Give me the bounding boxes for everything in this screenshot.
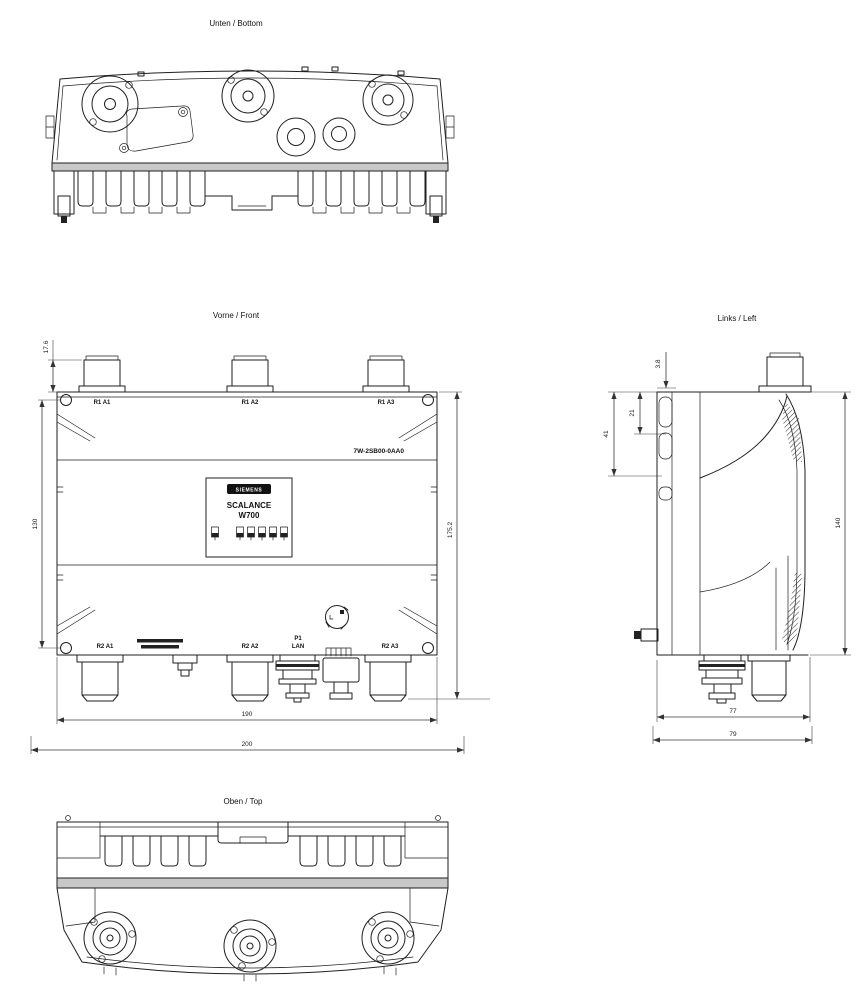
bottom-fin-comb [54, 171, 446, 214]
left-lan-m12-connector [699, 655, 745, 703]
front-lan-m12-connector [276, 655, 319, 702]
port-label-r2a3: R2 A3 [382, 644, 399, 650]
port-label-lan: LAN [292, 644, 304, 650]
dim-bracket-depth: 41 [603, 430, 610, 438]
port-label-r1a2: R1 A2 [242, 400, 259, 406]
view-left-title: Links / Left [718, 314, 757, 323]
nameplate-family: SCALANCE [227, 501, 272, 510]
bottom-housing-band [52, 163, 448, 171]
view-bottom-title: Unten / Bottom [209, 19, 263, 28]
led-group [237, 527, 288, 540]
dim-rail-lip: 3.8 [655, 359, 662, 368]
part-number: 7W-2SB00-0AA0 [354, 448, 405, 455]
front-body [57, 392, 437, 655]
left-body [657, 392, 808, 655]
port-label-p1: P1 [294, 636, 302, 642]
view-bottom: Unten / Bottom [46, 19, 454, 223]
left-grip-hatch-bottom [782, 572, 802, 646]
dim-hook-depth: 21 [629, 409, 636, 417]
nameplate: SIEMENS SCALANCE W700 [206, 478, 292, 557]
dim-mount-hole-pitch: 130 [32, 518, 39, 529]
dimension-drawing-page: Unten / Bottom [0, 0, 863, 1000]
port-label-r2a2: R2 A2 [242, 644, 259, 650]
top-housing-outline [57, 888, 448, 974]
front-service-plug [173, 655, 197, 676]
left-dimensions: 3.8 21 41 140 77 79 [603, 352, 851, 744]
dim-antenna-protrusion: 17.6 [43, 340, 50, 353]
top-housing-band [57, 878, 448, 888]
dim-overall-height: 175.2 [447, 521, 454, 538]
left-grip-hatch-top [782, 402, 802, 462]
front-power-connector [323, 648, 359, 699]
dim-body-height: 140 [835, 517, 842, 528]
front-antenna-connectors-bottom [77, 655, 411, 701]
dim-overall-width: 200 [242, 741, 253, 748]
top-antenna-connector-2 [224, 920, 276, 981]
bottom-gasket-plate [120, 106, 194, 153]
nameplate-model: W700 [239, 511, 260, 520]
view-top: Oben / Top [57, 797, 448, 981]
port-label-r1a1: R1 A1 [94, 400, 111, 406]
left-antenna-connector-top [759, 353, 811, 392]
view-left: Links / Left [603, 314, 851, 744]
led-indicators [212, 527, 288, 540]
dim-overall-depth: 79 [729, 731, 737, 738]
sealing-cap-symbol [326, 606, 349, 630]
view-front: Vorne / Front R1 A [31, 311, 490, 754]
left-wall-screw [634, 629, 658, 641]
view-front-title: Vorne / Front [213, 311, 260, 320]
top-fin-block [57, 816, 448, 879]
dim-body-width: 190 [242, 711, 253, 718]
dimension-drawing: Unten / Bottom [0, 0, 863, 1000]
dim-body-depth: 77 [729, 708, 737, 715]
bottom-antenna-connector-1 [82, 76, 138, 132]
siemens-logo-text: SIEMENS [236, 488, 263, 494]
port-label-r1a3: R1 A3 [378, 400, 395, 406]
front-antenna-connectors-top [79, 356, 409, 392]
left-antenna-connector-bottom [748, 655, 790, 701]
port-label-r2a1: R2 A1 [97, 644, 114, 650]
bottom-cable-glands [277, 118, 355, 156]
fine-print-label [137, 639, 183, 649]
view-top-title: Oben / Top [224, 797, 264, 806]
led-power [212, 527, 219, 540]
